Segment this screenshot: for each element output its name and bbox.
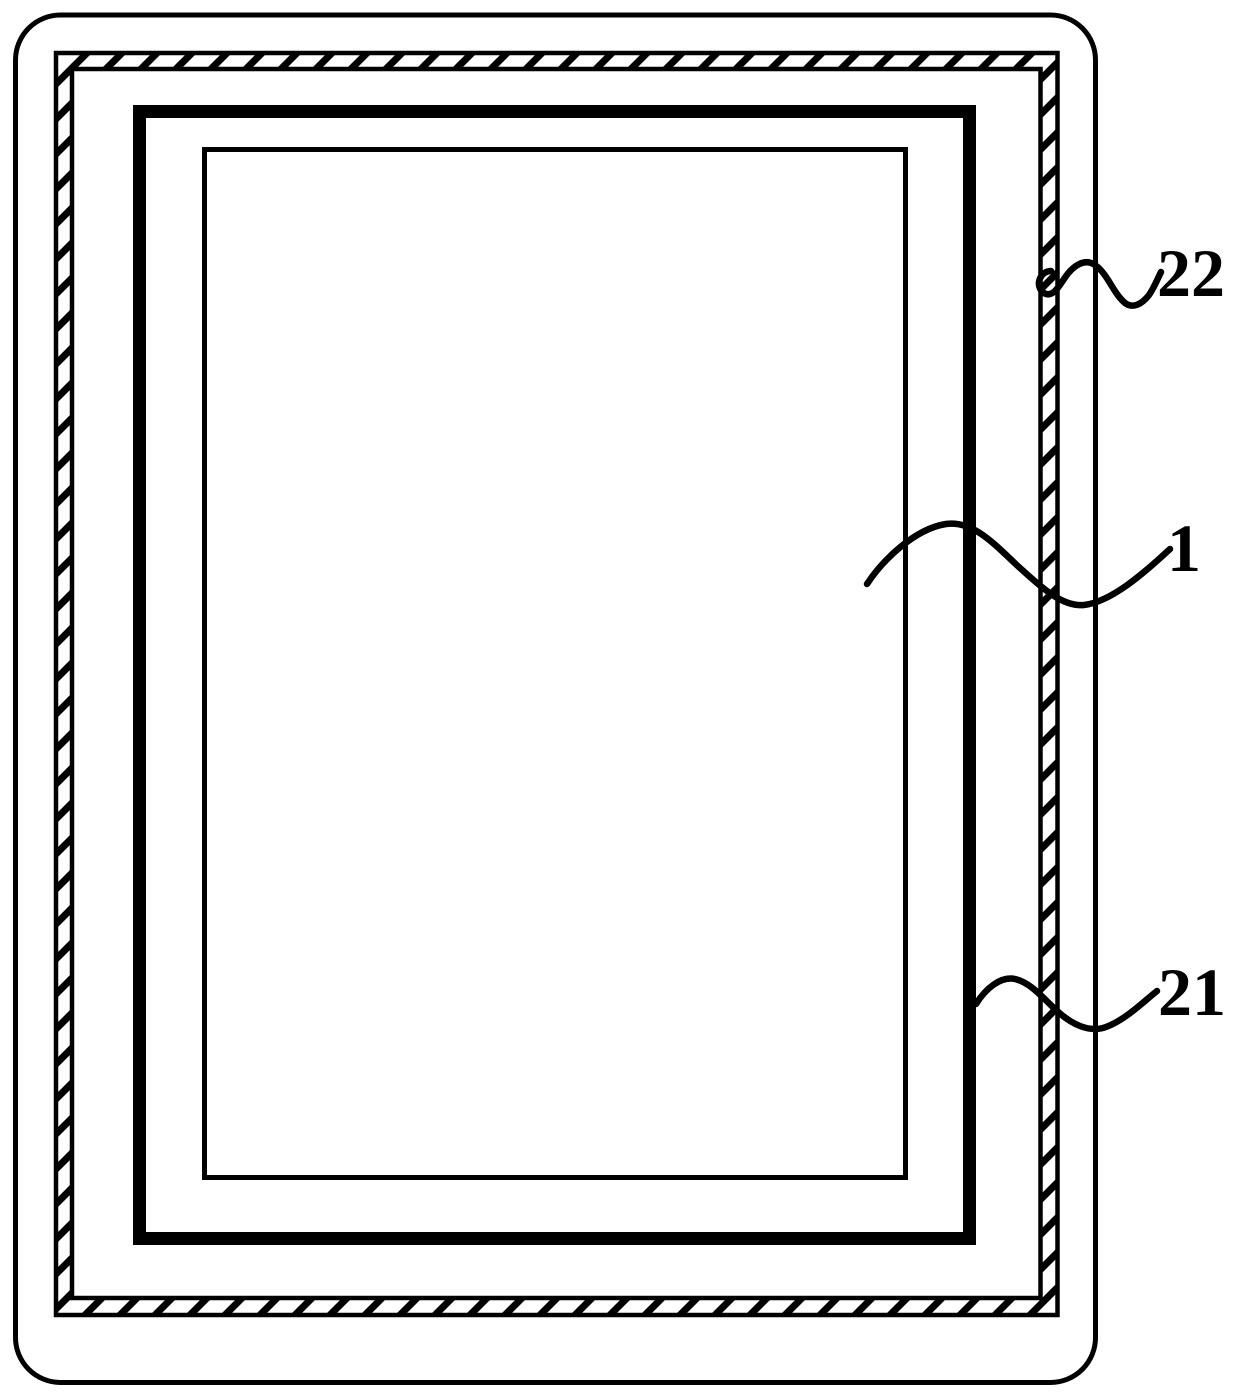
thick-inner-frame-outline <box>140 112 970 1239</box>
seal-band-inner-outline <box>72 69 1041 1298</box>
reference-label-22: 22 <box>1157 235 1225 311</box>
figure-canvas: 22 1 21 <box>0 0 1237 1400</box>
display-window-outline <box>205 150 906 1178</box>
leader-line-21 <box>976 979 1157 1029</box>
patent-figure-svg: 22 1 21 <box>0 0 1237 1400</box>
leader-line-1 <box>867 524 1170 606</box>
reference-label-21: 21 <box>1158 954 1226 1030</box>
reference-label-1: 1 <box>1167 510 1201 586</box>
